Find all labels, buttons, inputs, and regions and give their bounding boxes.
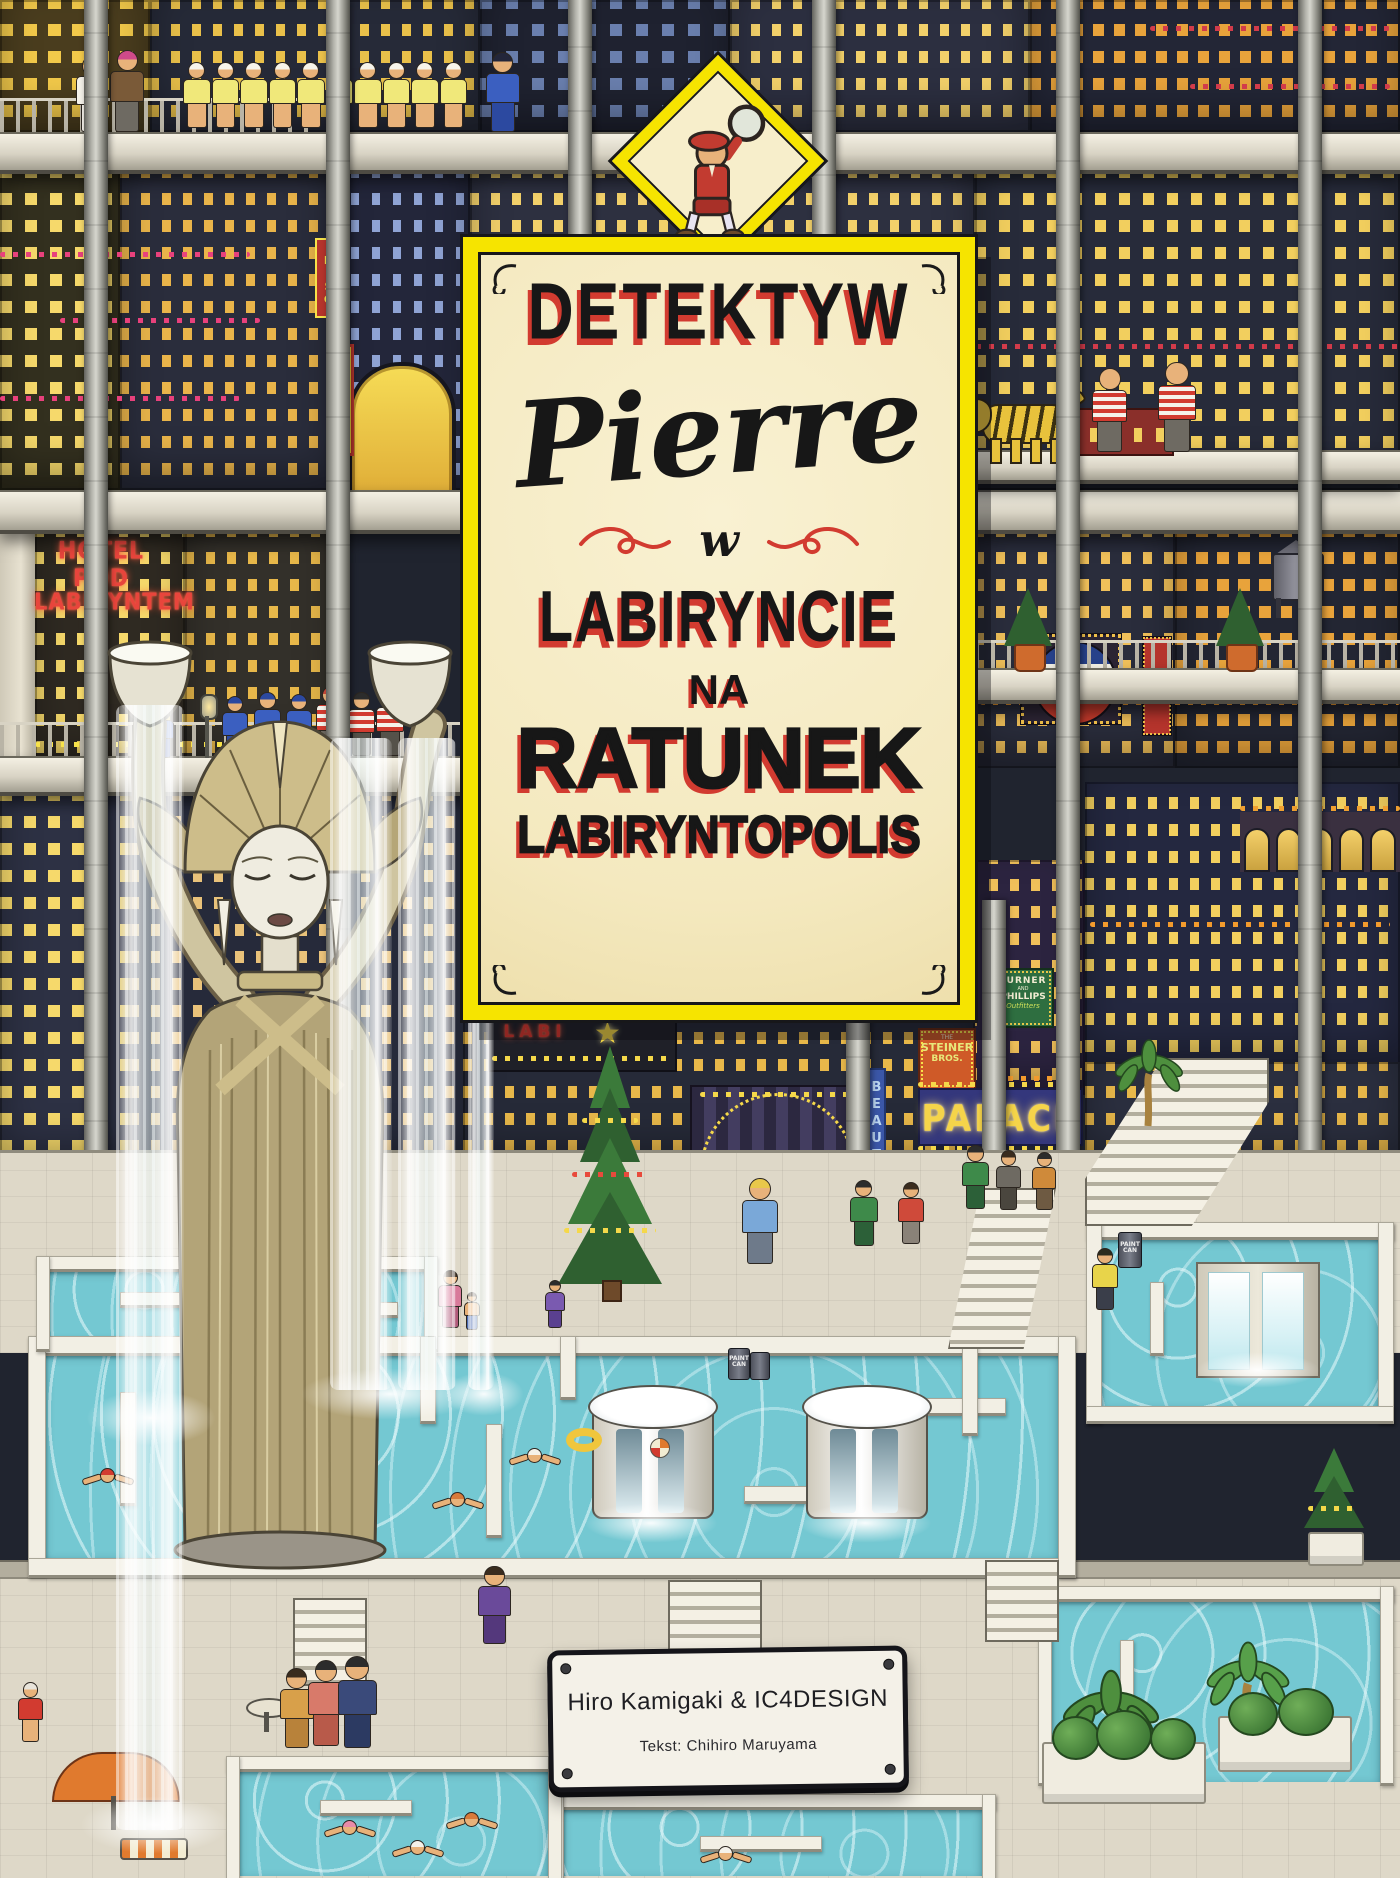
chorus-dancer <box>354 62 382 128</box>
bush <box>1228 1692 1278 1736</box>
credits-authors: Hiro Kamigaki & IC4DESIGN <box>553 1685 903 1718</box>
strongman <box>1092 368 1127 452</box>
small-conifer <box>1296 1448 1372 1572</box>
maze-wall <box>1038 1586 1394 1602</box>
arch-window <box>1339 828 1365 872</box>
pillar <box>1056 0 1080 1250</box>
building <box>1030 0 1400 132</box>
building <box>120 168 330 490</box>
maze-wall <box>550 1794 564 1878</box>
arched-doorway <box>348 362 456 494</box>
maze-wall <box>700 1836 822 1852</box>
maze-wall <box>1120 1640 1134 1724</box>
chorus-dancer <box>269 62 297 128</box>
neon-string <box>950 344 1400 349</box>
detective-figure <box>643 90 793 240</box>
person <box>898 1182 924 1244</box>
bush <box>1278 1688 1334 1736</box>
paint-can-label: PAINT <box>1120 1241 1140 1248</box>
title-subtitle-ratunek: RATUNEK <box>478 710 960 807</box>
labi-sign: LABI <box>500 1022 570 1042</box>
maze-wall <box>320 1800 412 1816</box>
screw <box>560 1663 571 1674</box>
chorus-dancer <box>383 62 411 128</box>
chorus-dancer <box>297 62 325 128</box>
paint-can-label: CAN <box>732 1361 746 1368</box>
chorus-dancer <box>212 62 240 128</box>
topiary-pot <box>1014 644 1046 672</box>
pillar <box>982 900 1006 1250</box>
maze-wall <box>900 1398 1006 1416</box>
maze-wall <box>982 1794 996 1878</box>
swimmer <box>330 1820 370 1840</box>
maze-wall <box>1378 1222 1394 1424</box>
round-table <box>246 1698 288 1732</box>
red-flourish <box>577 522 673 558</box>
corner-flourish <box>906 260 950 294</box>
neon-string <box>492 1056 672 1061</box>
steiner-line1: THE <box>920 1034 974 1041</box>
arch-window <box>1370 828 1396 872</box>
neon-string <box>1190 84 1390 89</box>
person <box>280 1668 314 1748</box>
title-plaque: DETEKTYW Pierre w LABIRYNCIE NA RATUNEK … <box>463 237 975 1020</box>
water-column <box>330 738 392 1390</box>
staircase <box>985 1560 1059 1642</box>
maze-wall <box>744 1486 842 1504</box>
palm-tree <box>1056 1668 1166 1798</box>
pillar <box>812 0 836 240</box>
maze-wall <box>1150 1282 1164 1356</box>
paint-can-label: CAN <box>1123 1247 1137 1254</box>
bush <box>1150 1718 1196 1760</box>
water-column <box>116 705 184 1830</box>
swimmer <box>452 1812 492 1832</box>
grand-sign: GRAND <box>796 1162 836 1262</box>
steiner-line2: STEINER <box>920 1041 974 1054</box>
waterfall <box>1208 1272 1250 1370</box>
labi-sign-text: LABI <box>503 1022 566 1042</box>
maze-wall <box>1058 1336 1076 1578</box>
maze-wall <box>36 1256 50 1352</box>
person-sitting-poolside <box>545 1280 565 1328</box>
screw <box>562 1768 573 1779</box>
screw <box>883 1659 894 1670</box>
title-subtitle-labiryntopolis: LABIRYNTOPOLIS <box>517 803 921 865</box>
man-on-stairs <box>1092 1248 1118 1310</box>
maze-wall <box>1086 1222 1394 1240</box>
building <box>1085 1062 1400 1167</box>
topiary-ledge <box>975 668 1400 704</box>
swimmer <box>706 1846 746 1866</box>
pool <box>1100 1236 1378 1408</box>
neon-string <box>0 252 250 257</box>
bush <box>1096 1710 1152 1760</box>
corner-flourish <box>488 260 532 294</box>
topiary-pot <box>1226 644 1258 672</box>
pool <box>238 1768 548 1876</box>
beach-ball <box>650 1438 670 1458</box>
waterfall <box>1262 1272 1304 1370</box>
maze-wall <box>550 1794 996 1810</box>
maze-wall <box>28 1336 46 1576</box>
fountain-pavilion <box>806 1385 924 1535</box>
strongman <box>1158 362 1196 452</box>
swimmer <box>398 1840 438 1860</box>
pool <box>562 1806 982 1876</box>
palm-tree <box>1200 1640 1296 1752</box>
paint-can-label: PAINT <box>729 1355 749 1362</box>
chorus-dancer <box>183 62 211 128</box>
splash <box>86 1390 216 1446</box>
person <box>1032 1152 1056 1210</box>
chorus-dancer <box>440 62 468 128</box>
planter-box <box>1218 1716 1352 1772</box>
pillar <box>568 0 592 240</box>
paint-can <box>750 1352 770 1380</box>
red-flourish <box>765 522 861 558</box>
maze-wall <box>1380 1586 1394 1786</box>
waterfall-wall <box>1196 1262 1320 1378</box>
waterfall-splash <box>1196 1352 1320 1388</box>
title-name: Pierre <box>473 335 965 528</box>
corner-flourish <box>906 965 950 999</box>
screw <box>885 1764 896 1775</box>
staircase <box>293 1598 367 1686</box>
pool <box>1050 1598 1380 1782</box>
stage-director <box>486 52 520 132</box>
swimmer <box>515 1448 555 1468</box>
book-cover: DISO TAGOS HOTEL POD LABIRYNTEM CalCola <box>0 0 1400 1878</box>
grand-theatre <box>690 1085 862 1264</box>
man-with-cane <box>110 50 144 132</box>
pillar <box>1298 0 1322 1250</box>
person <box>338 1656 377 1748</box>
water-column <box>398 738 456 1390</box>
maze-wall <box>1086 1406 1394 1424</box>
grand-sign-text: GRAND <box>814 1167 834 1267</box>
steiner-line3: BROS. <box>920 1054 974 1064</box>
bush <box>1052 1716 1100 1760</box>
neon-string <box>1150 26 1390 31</box>
chorus-dancer <box>240 62 268 128</box>
steiner-bros-sign: THE STEINER BROS. <box>918 1028 976 1090</box>
neon-string <box>700 1092 850 1097</box>
title-subtitle-na: NA <box>478 666 960 714</box>
title-connector: w <box>699 513 739 567</box>
neon-string <box>1090 922 1390 927</box>
maze-wall <box>486 1424 502 1538</box>
person <box>308 1660 344 1746</box>
paint-can: PAINTCAN <box>1118 1232 1142 1268</box>
walker <box>478 1566 511 1644</box>
chorus-dancer <box>411 62 439 128</box>
credits-plaque: Hiro Kamigaki & IC4DESIGN Tekst: Chihiro… <box>547 1645 909 1792</box>
corner-flourish <box>488 965 532 999</box>
maze-wall <box>226 1756 562 1772</box>
bather <box>18 1682 43 1742</box>
maze-wall <box>1038 1586 1052 1786</box>
paint-can: PAINTCAN <box>728 1348 750 1380</box>
credits-text-by: Tekst: Chihiro Maruyama <box>553 1735 903 1757</box>
splash <box>444 1372 524 1416</box>
title-place: LABIRYNCIE <box>539 574 899 659</box>
planter-box <box>1042 1742 1206 1804</box>
maze-wall <box>560 1336 576 1400</box>
splash <box>80 1796 230 1854</box>
arch-window <box>1244 828 1270 872</box>
maze-wall <box>1086 1222 1102 1424</box>
fountain-pavilion <box>592 1385 710 1535</box>
neon-string <box>0 396 240 401</box>
maze-wall <box>962 1336 978 1436</box>
swim-ring <box>566 1428 602 1452</box>
